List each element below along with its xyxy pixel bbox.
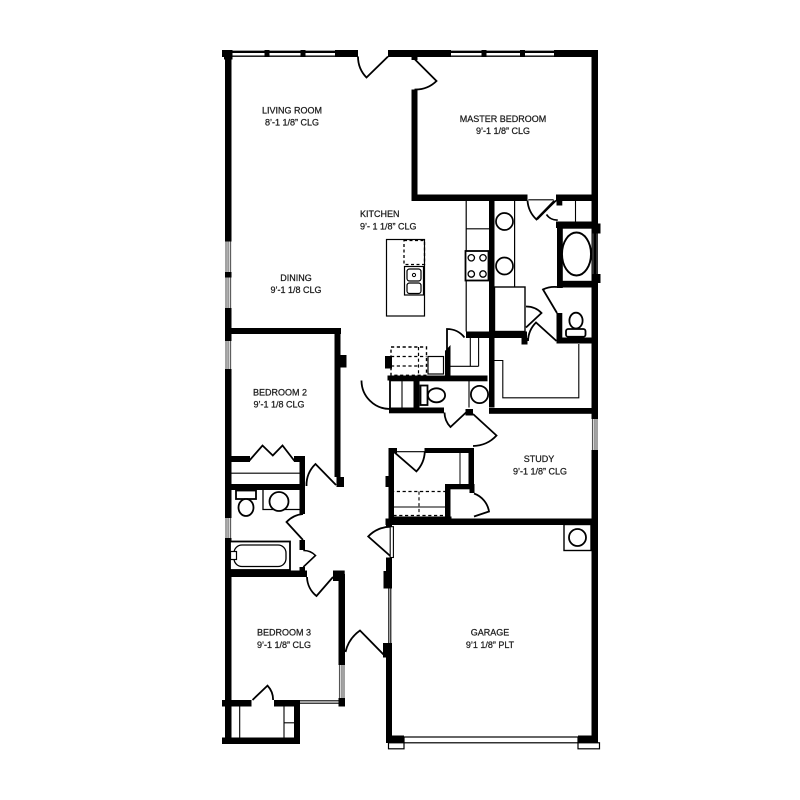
svg-text:BEDROOM 2: BEDROOM 2: [253, 388, 307, 398]
svg-text:9’1 1/8” PLT: 9’1 1/8” PLT: [466, 640, 515, 650]
svg-text:9’-1 1/8” CLG: 9’-1 1/8” CLG: [257, 640, 311, 650]
svg-text:9’-1 1/8” CLG: 9’-1 1/8” CLG: [513, 467, 567, 477]
svg-text:9’-1 1/8” CLG: 9’-1 1/8” CLG: [476, 126, 530, 136]
svg-text:8’-1 1/8” CLG: 8’-1 1/8” CLG: [265, 118, 319, 128]
svg-text:9’- 1 1/8” CLG: 9’- 1 1/8” CLG: [360, 222, 417, 232]
svg-text:BEDROOM 3: BEDROOM 3: [257, 628, 311, 638]
svg-text:MASTER BEDROOM: MASTER BEDROOM: [460, 114, 547, 124]
svg-text:LIVING ROOM: LIVING ROOM: [262, 106, 322, 116]
svg-text:9’-1 1/8 CLG: 9’-1 1/8 CLG: [270, 285, 321, 295]
svg-text:KITCHEN: KITCHEN: [360, 209, 400, 219]
svg-text:GARAGE: GARAGE: [471, 628, 510, 638]
svg-text:DINING: DINING: [280, 273, 312, 283]
svg-text:STUDY: STUDY: [524, 454, 555, 464]
svg-text:9’-1 1/8 CLG: 9’-1 1/8 CLG: [253, 400, 304, 410]
